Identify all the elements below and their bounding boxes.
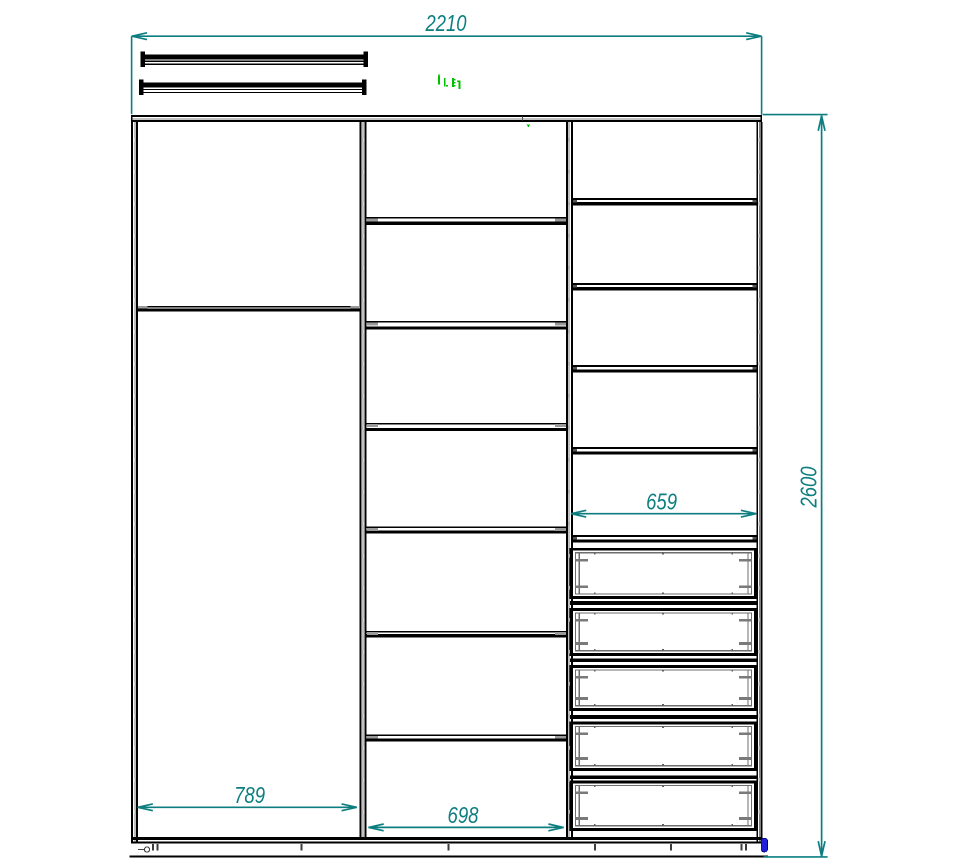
svg-text:2600: 2600 xyxy=(796,466,822,508)
svg-text:659: 659 xyxy=(646,489,677,515)
svg-text:2210: 2210 xyxy=(425,10,467,36)
svg-text:698: 698 xyxy=(448,802,479,828)
svg-text:789: 789 xyxy=(234,782,265,808)
